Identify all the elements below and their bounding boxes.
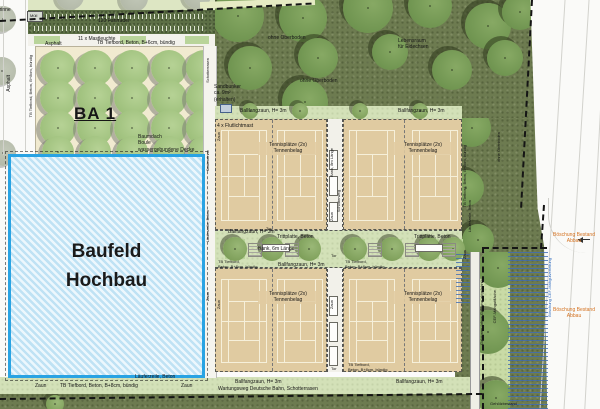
court-singles-line [228,131,229,220]
bank8-label: Bank, 8m Länge [329,148,334,177]
court-center-line [300,301,301,340]
zaun-court-label: Zaun [216,300,221,309]
bank6-label: Bank, 6m Länge [258,246,294,252]
court-singles-line [356,280,357,362]
ohne-oberboden-label: ohne Oberboden [268,35,306,41]
zaun-right-label: Zaun [462,250,467,259]
tree [223,237,247,261]
court-group: Tennisplätze (2x)Tennenbelag [343,119,462,230]
tennis-group-label: Tennisplätze (2x)Tennenbelag [258,291,318,304]
tree [487,40,523,76]
court-divider [404,269,405,371]
court-singles-line [387,280,388,362]
laeuferzeile-v-label: Läuferzeile, Beton [205,210,210,242]
bench [415,244,443,252]
tennenbelag-label: Tennenbelag [393,297,453,303]
zaun-v-label: Zaun [205,292,210,301]
tree [408,0,452,28]
tennenbelag-label: Tennenbelag [258,297,318,303]
court-divider [272,120,273,229]
tree [297,237,321,261]
tennis-complex: Tennisplätze (2x)TennenbelagTennisplätze… [215,106,462,378]
tennis-group-label: Tennisplätze (2x)Tennenbelag [393,142,453,155]
zaun-court-label: Zaun [216,132,221,141]
ohne-oberboden-label2: ohne Oberboden [300,78,338,84]
court-group: Tennisplätze (2x)Tennenbelag [215,119,327,230]
court-center-line [372,301,373,340]
court-singles-line [356,131,357,220]
tiefbord8-label: TB Tiefbord,Beton, B+8cm, bündig [345,259,384,269]
tennis-court [349,279,395,363]
ba1-label: BA 1 [74,103,116,124]
ballfangzaun-label: Ballfangzaun, H= 3m [398,108,445,114]
zaun-corridor-label: Zaun [329,212,334,221]
court-singles-line [387,131,388,220]
forest-top [215,0,535,118]
flutlichtmast-label: 4 x Flutlichtmast [217,123,253,129]
tor-label: Tor [331,253,337,258]
court-center-line [244,154,245,197]
sandbunker-box [220,104,232,113]
tree [292,103,308,119]
tree [380,237,404,261]
sandbunker-label: Sandbunker ca. 9m² (erhalten) [214,84,241,103]
kastenrinne-v-label: Kastenrinne [205,150,210,171]
bike-racks [34,26,206,31]
court-divider [404,120,405,229]
boeschung-label: Böschung BestandAbbau [552,232,596,245]
tennenbelag-label: Tennenbelag [258,148,318,154]
planting-square [185,36,209,44]
baufeld-hochbau: Baufeld Hochbau [8,154,205,378]
tiefbord8-label: TB Tiefbord,Beton, B+8cm, bündig [348,362,387,372]
trittplatte-label: Trittplatte, Beton [414,234,451,240]
zaun-corridor-label: Zaun [329,300,334,309]
court-divider [272,269,273,371]
tennis-group-label: Tennisplätze (2x)Tennenbelag [393,291,453,304]
tiefbord8-bottom-label: TB Tiefbord, Beton, B+8cm, bündig [60,383,138,389]
laeuferzeile-bottom-label: Läuferzeile, Beton [135,374,175,380]
boundary-line-abbau [483,247,547,249]
laeuferzeile-right-label: Läuferzeile, Beton [467,200,472,232]
court-center-line [372,154,373,197]
street-left-curb [25,0,26,152]
court-group: Tennisplätze (2x)Tennenbelag [215,268,327,372]
baumdach-label: Baumdach Boule wassergebundene Decke [138,134,194,153]
tree-grate [368,243,382,257]
court-center-line [435,154,436,197]
zaun-bottom-label: Zaun [35,383,46,389]
slope-hatch-main [508,252,548,409]
boeschung-label: Böschung BestandAbbau [552,307,596,320]
ballfangzaun-label: Ballfangzaun, H= 3m [240,108,287,114]
court-center-line [435,301,436,340]
asphalt-label: Asphalt [45,41,62,47]
court-center-line [244,301,245,340]
tree [343,237,367,261]
ballfangzaun-label: Ballfangzaun, H= 3m [235,379,282,385]
asphalt-left-label: Asphalt [6,75,12,92]
ballfangzaun-label: Ballfangzaun, H= 3m [278,262,325,268]
tennenbelag-label: Tennenbelag [393,148,453,154]
tiefbord6-label: TB Tiefbord, Beton, B+6cm, bündig [97,40,175,46]
fahrraeder-label: 120 Fahrräder [98,18,130,24]
slope-hatch-small [456,254,470,304]
schotterweg-label: Schotterweg [336,190,341,212]
tree [298,38,338,78]
tiefbord8-right-label: TB Tiefbord, Beton, B+8cm, bündig [462,145,467,207]
gabionen-label: Gabionen (ohne Gabione abgelehnt) [479,280,484,345]
gehoelzbestand-label: Gehölzbestand [490,401,517,406]
trittplatte-label: Trittplatte, Beton [277,234,314,240]
bench [329,346,338,366]
eidechsen-label: Lebensraum für Eidechsen [398,38,429,51]
tree-grate [442,243,456,257]
ballfangzaun-label: Ballfangzaun, H= 3m [396,379,443,385]
baufeld-label: Baufeld Hochbau [66,237,147,296]
street-left-line [3,0,4,155]
tennis-group-label: Tennisplätze (2x)Tennenbelag [258,142,318,155]
boeschung-cef-label: Böschung CEF-Mähgutverteilung [547,258,552,317]
tiefbord8-plaza-label: TB Tiefbord, Beton, B+8cm, bündig [28,55,33,117]
ohne-oberboden-v-label: ohne Oberboden [496,132,501,162]
tennis-court [349,130,395,221]
court-singles-line [228,280,229,362]
tree [56,0,84,10]
tiefbord8-label: TB Tiefbord,Beton, B+8cm, bündig [218,259,257,269]
court-center-line [300,154,301,197]
site-plan: Tennisplätze (2x)TennenbelagTennisplätze… [0,0,600,409]
court-group: Tennisplätze (2x)Tennenbelag [343,268,462,372]
tree [352,103,368,119]
tree [432,50,472,90]
kastenrinne-label: Kastenrinne [0,7,11,13]
cef-label: CEF-Mähgutfläche [492,290,497,323]
bench [329,322,338,342]
zaun-bottom-label: Zaun [181,383,192,389]
wartungsweg-label: Wartungsweg Deutsche Bahn, Schotterrasen [218,386,318,392]
schotterrasen-left-label: Schotterrasen [205,58,210,83]
tree [343,0,393,33]
tor-label: Tor [266,226,272,231]
tor-label: Tor [331,366,337,371]
